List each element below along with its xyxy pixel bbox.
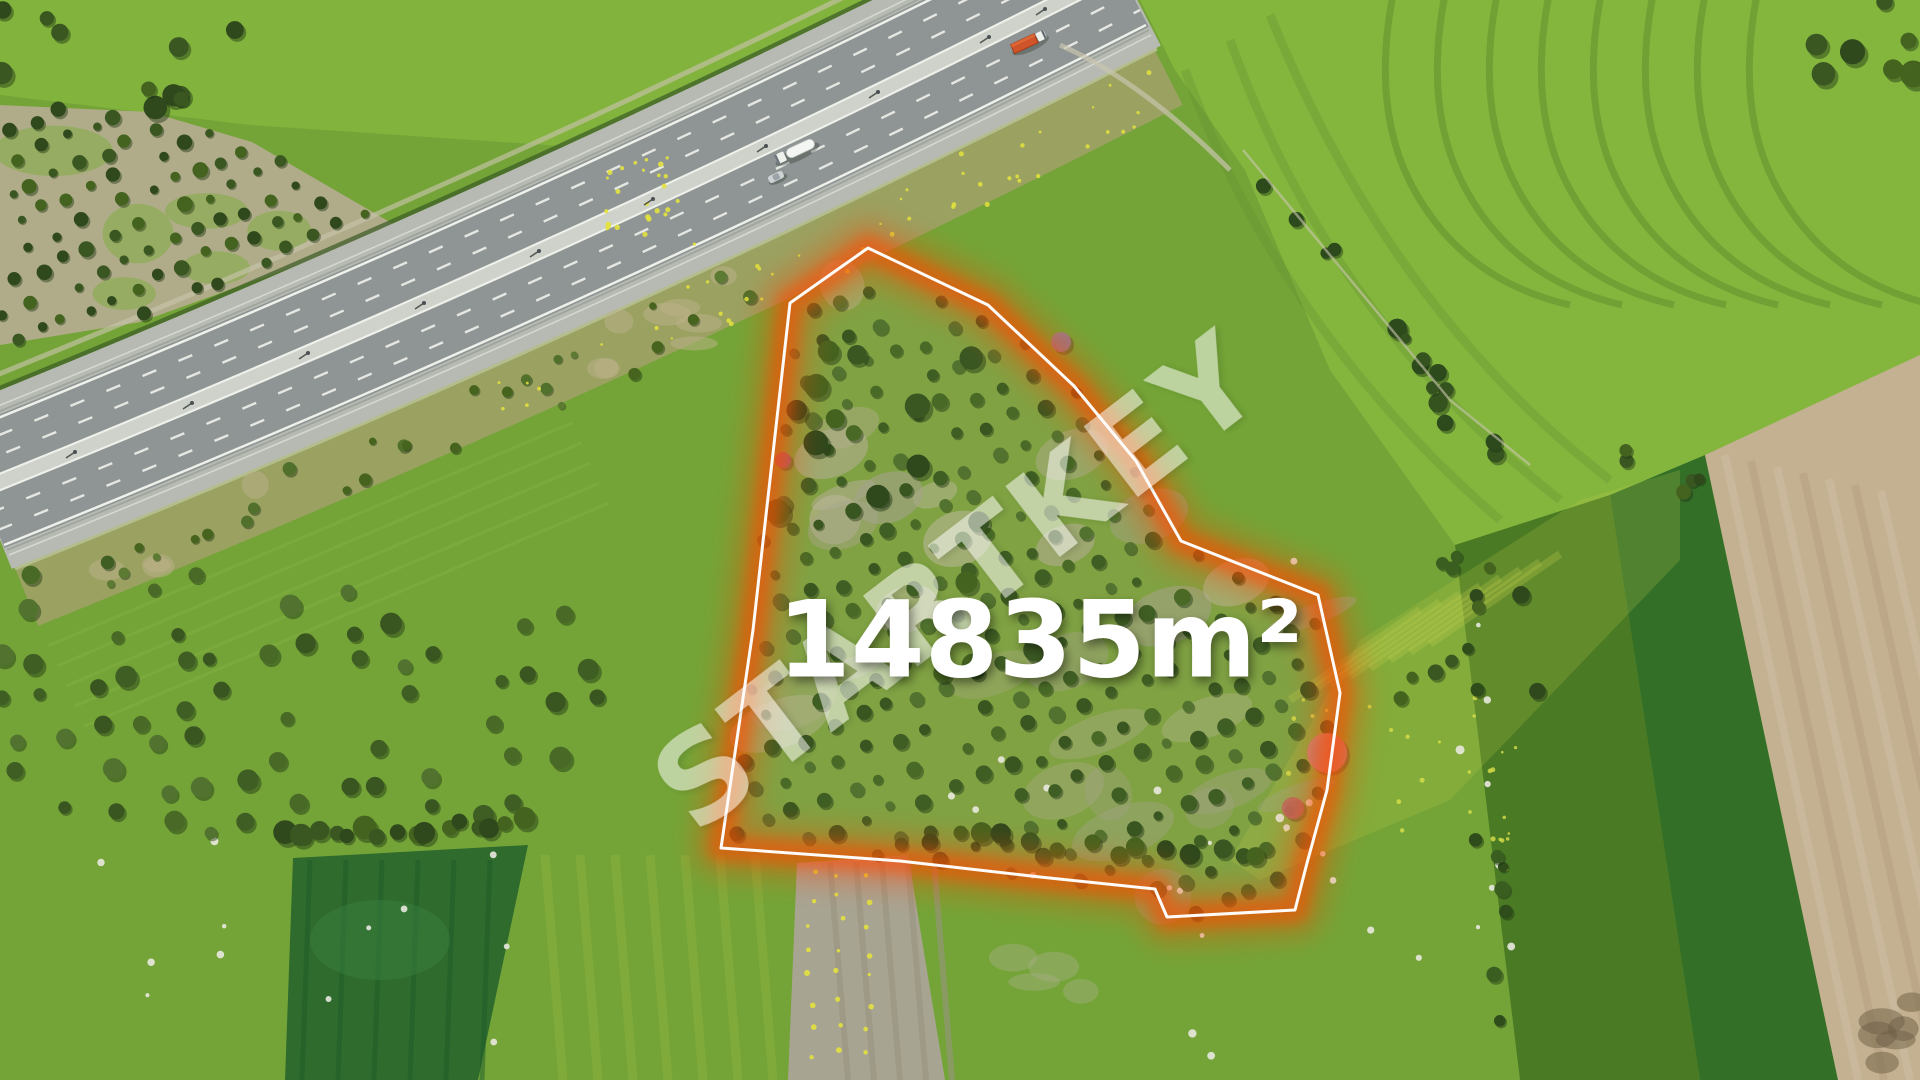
area-label: 14835m² — [777, 579, 1303, 702]
texture — [620, 166, 624, 170]
tree — [109, 230, 121, 242]
tree — [818, 340, 839, 361]
tree — [517, 618, 532, 633]
texture — [1286, 771, 1291, 776]
texture — [868, 1004, 873, 1009]
tree — [830, 547, 841, 558]
texture — [607, 170, 612, 175]
tree — [55, 314, 65, 324]
rock — [222, 924, 227, 929]
tree — [205, 827, 217, 839]
tree — [907, 455, 930, 478]
tree — [1694, 473, 1705, 484]
tree — [310, 821, 329, 840]
rock — [1476, 623, 1481, 628]
texture — [646, 216, 651, 221]
tree — [202, 529, 213, 540]
tree — [452, 814, 467, 829]
tree — [115, 666, 137, 688]
texture — [1368, 705, 1372, 709]
tree — [75, 283, 84, 292]
tree — [380, 613, 402, 635]
texture — [1132, 125, 1135, 128]
texture — [537, 387, 541, 391]
tree — [97, 265, 110, 278]
tree — [978, 700, 992, 714]
tree — [341, 778, 359, 796]
texture — [1420, 778, 1425, 783]
tree — [1512, 586, 1530, 604]
texture — [1491, 836, 1496, 841]
tree — [1288, 723, 1304, 739]
tree — [1229, 749, 1242, 762]
texture — [671, 337, 673, 339]
tree — [1812, 62, 1836, 86]
tree — [1486, 967, 1502, 983]
tree — [715, 271, 727, 283]
texture — [806, 924, 810, 928]
rock — [1484, 781, 1490, 787]
aerial-photo-canvas: STARTKEY 14835m² — [0, 0, 1920, 1080]
tree — [1248, 811, 1260, 823]
tree — [213, 682, 229, 698]
lamp-post-base — [537, 249, 541, 253]
texture — [615, 225, 620, 230]
tree — [479, 818, 499, 838]
texture — [1405, 735, 1409, 739]
lamp-post-base — [422, 301, 426, 305]
tree — [628, 368, 640, 380]
texture — [605, 222, 610, 227]
tree — [870, 386, 882, 398]
tree — [1036, 756, 1047, 767]
tree — [1111, 787, 1126, 802]
tree — [1428, 393, 1447, 412]
rock — [1207, 1052, 1215, 1060]
tree — [111, 631, 123, 643]
tree — [236, 813, 254, 831]
tree — [1194, 835, 1206, 847]
tree — [1619, 444, 1632, 457]
tree — [213, 212, 226, 225]
texture — [836, 1047, 842, 1053]
tree — [31, 116, 44, 129]
tree — [540, 383, 552, 395]
texture — [1020, 143, 1025, 148]
texture — [863, 1027, 868, 1032]
tree — [879, 523, 895, 539]
tree — [105, 110, 120, 125]
tree — [398, 659, 412, 673]
texture — [867, 953, 872, 958]
rock — [145, 993, 149, 997]
texture — [1468, 770, 1471, 773]
tree — [1006, 407, 1018, 419]
tree — [1437, 415, 1454, 432]
tree — [421, 768, 439, 786]
texture — [864, 925, 869, 930]
tree — [976, 765, 992, 781]
tree — [486, 716, 502, 732]
texture — [1007, 176, 1011, 180]
texture — [686, 285, 690, 289]
tree — [137, 306, 151, 320]
tree — [878, 422, 888, 432]
texture — [604, 309, 633, 333]
tree — [554, 355, 563, 364]
texture — [642, 169, 645, 172]
tree — [176, 701, 194, 719]
texture — [1092, 106, 1094, 108]
tree — [101, 556, 115, 570]
tree — [133, 716, 149, 732]
texture — [642, 232, 647, 237]
tree — [1020, 715, 1035, 730]
tree — [226, 21, 244, 39]
tree — [1469, 833, 1483, 847]
tree — [241, 516, 253, 528]
tree — [1059, 736, 1072, 749]
tree — [504, 747, 520, 763]
tree — [11, 154, 24, 167]
lamp-post-base — [1043, 7, 1047, 11]
tree — [259, 645, 278, 664]
rock — [504, 943, 510, 949]
tree — [340, 829, 354, 843]
tree — [1117, 721, 1129, 733]
texture — [905, 188, 908, 191]
tree — [7, 272, 20, 285]
texture — [961, 172, 964, 175]
tree — [347, 627, 362, 642]
texture — [1106, 130, 1110, 134]
tree — [915, 794, 931, 810]
texture — [665, 207, 670, 212]
tree — [390, 824, 406, 840]
tree — [850, 782, 864, 796]
tree — [1049, 706, 1064, 721]
tree — [279, 240, 292, 253]
rock — [1489, 885, 1495, 891]
tree — [87, 306, 96, 315]
rock — [1507, 943, 1515, 951]
tree — [836, 476, 846, 486]
tree — [177, 135, 192, 150]
texture — [605, 227, 609, 231]
tree — [72, 155, 87, 170]
texture — [834, 893, 838, 897]
tree — [1182, 701, 1193, 712]
tree — [280, 595, 301, 616]
rock — [972, 806, 979, 813]
tree — [117, 134, 130, 147]
tree — [801, 478, 816, 493]
tree — [174, 260, 189, 275]
tree — [1057, 819, 1067, 829]
tree — [1529, 683, 1546, 700]
tree — [203, 653, 216, 666]
tree — [56, 729, 74, 747]
tree — [899, 483, 912, 496]
rock — [1484, 696, 1491, 703]
tree — [1124, 542, 1136, 554]
tree — [261, 258, 271, 268]
tree — [991, 823, 1011, 843]
rock — [147, 958, 155, 966]
rock — [1188, 1029, 1196, 1037]
tree — [1134, 743, 1150, 759]
lamp-post-base — [306, 351, 310, 355]
tree — [119, 568, 130, 579]
tree — [23, 654, 43, 674]
texture — [719, 312, 723, 316]
texture — [1291, 716, 1296, 721]
texture — [606, 177, 609, 180]
tree — [192, 282, 203, 293]
tree — [144, 245, 154, 255]
texture — [757, 267, 761, 271]
tree — [296, 633, 316, 653]
texture — [1501, 751, 1504, 754]
tree — [1217, 718, 1234, 735]
texture — [693, 243, 696, 246]
tree — [247, 231, 261, 245]
tree — [1246, 847, 1264, 865]
texture — [93, 277, 156, 310]
tree — [520, 666, 536, 682]
tree — [1166, 765, 1181, 780]
tree — [862, 816, 871, 825]
tree — [18, 216, 26, 224]
tree — [813, 520, 823, 530]
tree — [826, 409, 845, 428]
texture — [1039, 131, 1042, 134]
texture — [804, 970, 810, 976]
tree — [1127, 821, 1143, 837]
texture — [1400, 828, 1404, 832]
texture — [900, 198, 903, 201]
tree — [1242, 777, 1254, 789]
tree — [107, 580, 115, 588]
tree — [949, 779, 963, 793]
tree — [906, 762, 922, 778]
tree — [688, 314, 699, 325]
tree — [177, 196, 193, 212]
texture — [633, 161, 637, 165]
tree — [78, 241, 94, 257]
texture — [666, 156, 669, 159]
tree — [134, 543, 143, 552]
rock — [1367, 926, 1374, 933]
texture — [525, 403, 529, 407]
tree — [248, 503, 260, 515]
tree — [133, 284, 145, 296]
tree — [159, 152, 168, 161]
tree — [150, 123, 163, 136]
tree — [425, 799, 439, 813]
tree — [1157, 840, 1175, 858]
tree — [132, 217, 145, 230]
tree — [178, 652, 196, 670]
tree — [22, 566, 40, 584]
tree — [1394, 691, 1408, 705]
texture — [501, 407, 505, 411]
tree — [59, 193, 72, 206]
tree — [102, 149, 116, 163]
tree — [549, 747, 571, 769]
texture — [1028, 952, 1079, 982]
tree — [1445, 655, 1458, 668]
texture — [952, 202, 957, 207]
tree — [1806, 34, 1828, 56]
texture — [670, 336, 718, 350]
tree — [1470, 589, 1484, 603]
tree — [845, 503, 861, 519]
texture — [863, 1050, 867, 1054]
texture — [1498, 838, 1501, 841]
tree — [265, 194, 277, 206]
tree — [191, 222, 204, 235]
texture — [1865, 1052, 1899, 1074]
tree — [954, 826, 968, 840]
texture — [1136, 111, 1139, 114]
tree — [235, 146, 247, 158]
texture — [604, 209, 608, 213]
tree — [1229, 825, 1239, 835]
texture — [1063, 979, 1098, 1004]
tree — [1900, 33, 1916, 49]
tree — [832, 366, 845, 379]
texture — [1015, 175, 1019, 179]
tree — [211, 278, 224, 291]
tree — [10, 735, 25, 750]
tree — [842, 399, 852, 409]
rock — [1416, 955, 1422, 961]
tree — [450, 443, 461, 454]
tree — [50, 101, 65, 116]
lamp-post-base — [876, 90, 880, 94]
tree — [361, 210, 370, 219]
tree — [1099, 755, 1114, 770]
tree — [1190, 731, 1207, 748]
tree — [169, 37, 189, 57]
tree — [890, 344, 902, 356]
rock — [1476, 925, 1480, 929]
texture — [657, 173, 661, 177]
tree — [253, 167, 262, 176]
tree — [184, 726, 203, 745]
rock — [366, 925, 371, 930]
texture — [1490, 767, 1495, 772]
tree — [893, 453, 908, 468]
tree — [558, 402, 565, 409]
tree — [58, 801, 71, 814]
tree — [803, 430, 828, 455]
tree — [164, 811, 184, 831]
texture — [959, 151, 964, 156]
tree — [959, 346, 982, 369]
tree — [280, 712, 293, 725]
tree — [783, 802, 798, 817]
texture — [242, 471, 269, 499]
tree — [22, 179, 37, 194]
tree — [161, 785, 177, 801]
tree — [1484, 562, 1495, 573]
tree — [1428, 664, 1444, 680]
tree — [991, 726, 1004, 739]
tree — [1205, 866, 1216, 877]
tree — [905, 393, 930, 418]
tree — [343, 486, 352, 495]
tree — [152, 269, 164, 281]
tree — [1491, 850, 1504, 863]
tree — [205, 129, 213, 137]
tree — [1180, 844, 1201, 865]
tree — [307, 229, 319, 241]
tree — [971, 822, 992, 843]
tree — [817, 793, 832, 808]
tree — [885, 801, 894, 810]
tree — [153, 553, 161, 561]
tree — [425, 646, 440, 661]
tree — [863, 286, 875, 298]
texture — [985, 202, 990, 207]
texture — [1121, 130, 1125, 134]
tree — [272, 216, 283, 227]
tree — [1499, 905, 1513, 919]
tree — [556, 606, 573, 623]
tree — [800, 552, 812, 564]
tree — [143, 96, 167, 120]
texture — [978, 182, 983, 187]
tree — [291, 181, 299, 189]
tree — [502, 387, 513, 398]
texture — [1036, 174, 1040, 178]
texture — [664, 174, 668, 178]
tree — [283, 462, 296, 475]
tree — [860, 533, 872, 545]
texture — [654, 326, 658, 330]
tree — [1445, 561, 1459, 575]
tree — [1153, 811, 1162, 820]
tree — [997, 383, 1008, 394]
tree — [226, 179, 235, 188]
tree — [289, 794, 307, 812]
tree — [469, 385, 479, 395]
tree — [1024, 821, 1037, 834]
texture — [658, 161, 664, 167]
texture — [645, 158, 648, 161]
tree — [23, 243, 32, 252]
tree — [970, 393, 984, 407]
tree — [38, 322, 48, 332]
tree — [497, 816, 511, 830]
tree — [103, 758, 124, 779]
tree — [649, 302, 656, 309]
tree — [402, 440, 412, 450]
aerial-photo: STARTKEY 14835m² — [0, 0, 1920, 1080]
tree — [370, 740, 387, 757]
tree — [1070, 769, 1083, 782]
tree — [352, 650, 368, 666]
tree — [330, 217, 342, 229]
tree — [1245, 707, 1262, 724]
tree — [293, 213, 302, 222]
tree — [225, 237, 238, 250]
tree — [951, 427, 962, 438]
texture — [811, 1024, 817, 1030]
tree — [571, 351, 578, 358]
